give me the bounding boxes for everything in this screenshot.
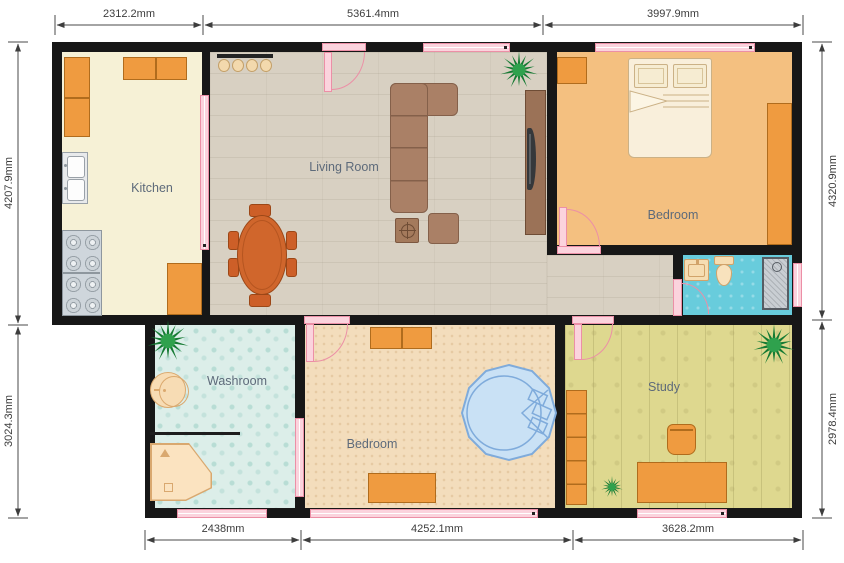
dim-right-1: 4320.9mm [827, 155, 839, 207]
window-bedroom-top [595, 43, 755, 52]
desk-chair [667, 424, 696, 455]
room-label-bedroom-second: Bedroom [347, 437, 398, 451]
dining-chair [286, 258, 297, 277]
room-label-washroom: Washroom [207, 374, 267, 388]
sliding-door-washroom [295, 418, 304, 497]
wardrobe [767, 103, 792, 245]
door-study-leaf [574, 324, 582, 360]
sofa-side-arm [390, 83, 428, 213]
bathroom-sink [684, 259, 709, 281]
window-bathroom-right [793, 263, 802, 307]
bedroom2-bench [368, 473, 436, 503]
corner-shower [150, 443, 212, 501]
pedestal-sink [150, 372, 186, 408]
dim-top-2: 5361.4mm [347, 8, 399, 20]
wall-bedroom-left [547, 42, 557, 255]
room-label-kitchen: Kitchen [131, 181, 173, 195]
wall-middle [145, 315, 792, 325]
window-bedroom2-bottom [310, 509, 538, 518]
dim-left-2: 3024.3mm [3, 395, 15, 447]
door-living-top-leaf [324, 52, 332, 92]
door-living-top [322, 43, 366, 51]
kitchen-cabinet-corner [167, 263, 202, 315]
room-label-bedroom-main: Bedroom [648, 208, 699, 222]
plant-icon [753, 324, 795, 366]
bedroom2-cabinet [370, 327, 432, 349]
dim-top-3: 3997.9mm [647, 8, 699, 20]
room-label-study: Study [648, 380, 680, 394]
desk [637, 462, 727, 503]
dining-table [237, 215, 287, 295]
door-study [572, 316, 614, 324]
kitchen-counter-left [64, 57, 90, 137]
dim-top-1: 2312.2mm [103, 8, 155, 20]
dim-right-2: 2978.4mm [827, 393, 839, 445]
round-spa-tub [460, 364, 558, 462]
bedroom-dresser [557, 57, 587, 84]
dining-chair [249, 294, 271, 307]
door-bedroom-main-leaf [559, 207, 567, 247]
hallway [547, 255, 673, 315]
washroom-partition [150, 432, 240, 435]
shower-tub [762, 257, 789, 310]
double-bed [628, 58, 712, 158]
track-lights [217, 52, 273, 72]
door-bedroom-second [304, 316, 350, 324]
plant-icon [601, 476, 623, 498]
dim-bottom-1: 2438mm [202, 523, 245, 535]
kitchen-sink [62, 152, 88, 204]
room-label-living: Living Room [309, 160, 378, 174]
bookshelf [566, 390, 587, 505]
door-bedroom-second-leaf [306, 324, 314, 362]
toilet-icon [713, 256, 735, 288]
sliding-door-kitchen [200, 95, 209, 250]
door-bedroom-main [557, 246, 601, 254]
window-living-top [423, 43, 510, 52]
dining-chair [286, 231, 297, 250]
plant-icon [500, 51, 538, 89]
window-washroom-bottom [177, 509, 267, 518]
floorplan-canvas: 2312.2mm 5361.4mm 3997.9mm 4207.9mm 3024… [0, 0, 844, 563]
plant-icon [147, 320, 189, 362]
side-table [395, 218, 419, 243]
kitchen-stove [62, 230, 102, 316]
wall-step [52, 315, 155, 325]
dim-bottom-2: 4252.1mm [411, 523, 463, 535]
window-study-bottom [637, 509, 727, 518]
wall-left-upper [52, 42, 62, 325]
dim-bottom-3: 3628.2mm [662, 523, 714, 535]
dim-left-1: 4207.9mm [3, 157, 15, 209]
kitchen-cabinet-top [123, 57, 187, 80]
door-bathroom [673, 279, 682, 316]
ottoman [428, 213, 459, 244]
